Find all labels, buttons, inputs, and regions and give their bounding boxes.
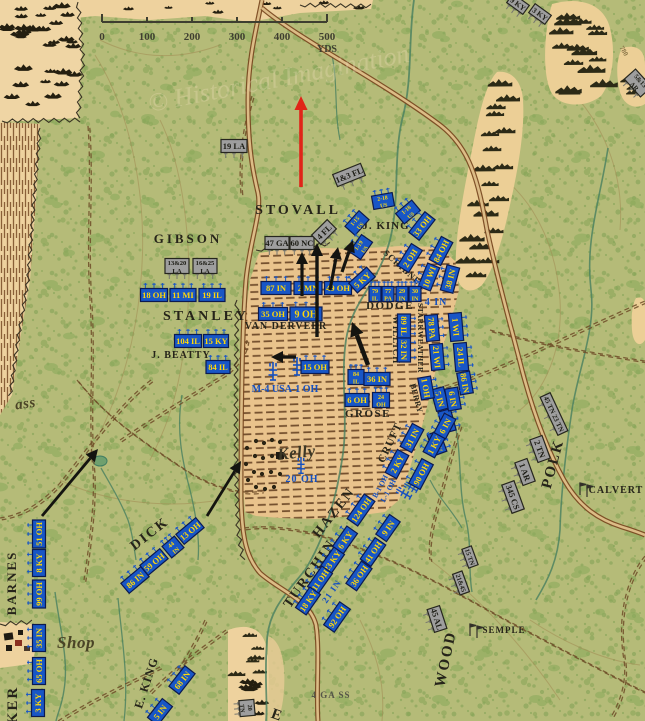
svg-text:84: 84	[353, 372, 359, 378]
svg-text:79: 79	[372, 289, 378, 295]
svg-text:IN: IN	[412, 297, 419, 303]
svg-text:PA: PA	[384, 297, 392, 303]
svg-text:15 OH: 15 OH	[303, 362, 327, 372]
svg-text:SEMPLE: SEMPLE	[482, 625, 525, 635]
svg-text:KER: KER	[5, 686, 21, 721]
svg-text:IN: IN	[399, 297, 406, 303]
svg-text:99 OH: 99 OH	[34, 582, 44, 606]
svg-text:24 IL: 24 IL	[455, 347, 467, 368]
svg-text:ass: ass	[14, 395, 37, 414]
svg-text:20: 20	[246, 705, 253, 712]
svg-text:104 IL: 104 IL	[176, 336, 200, 346]
svg-text:32 IN: 32 IN	[399, 340, 409, 361]
svg-text:100: 100	[139, 31, 156, 43]
svg-text:VAN DERVEER: VAN DERVEER	[245, 321, 327, 332]
svg-text:89 IL: 89 IL	[399, 316, 409, 336]
svg-text:65 OH: 65 OH	[34, 659, 44, 683]
svg-text:400: 400	[274, 31, 291, 43]
svg-text:STARKWEATHER: STARKWEATHER	[416, 303, 425, 373]
svg-text:77: 77	[385, 289, 391, 295]
svg-text:4 GA SS: 4 GA SS	[311, 690, 350, 700]
svg-text:OH: OH	[376, 403, 386, 409]
svg-text:Shop: Shop	[57, 633, 95, 652]
svg-text:15 KY: 15 KY	[204, 336, 227, 346]
svg-text:1 WI: 1 WI	[450, 318, 462, 338]
svg-text:GROSE: GROSE	[345, 408, 391, 420]
svg-text:BARNES: BARNES	[4, 551, 19, 616]
svg-text:21 WI: 21 WI	[431, 345, 443, 369]
svg-text:300: 300	[229, 31, 246, 43]
svg-text:J. BEATTY: J. BEATTY	[151, 350, 210, 361]
svg-text:11 MI: 11 MI	[172, 290, 194, 300]
svg-text:51 OH: 51 OH	[34, 522, 44, 546]
svg-text:35 OH: 35 OH	[261, 309, 285, 319]
svg-text:78 PA: 78 PA	[426, 317, 438, 340]
svg-text:87 IN: 87 IN	[266, 283, 287, 293]
svg-text:STOVALL: STOVALL	[255, 203, 341, 218]
svg-text:IL: IL	[372, 297, 378, 303]
svg-text:US: US	[380, 203, 388, 210]
svg-text:13&20: 13&20	[168, 260, 187, 267]
svg-text:4 IN: 4 IN	[425, 297, 448, 308]
svg-text:CALVERT: CALVERT	[589, 485, 644, 496]
svg-text:6 OH: 6 OH	[347, 395, 367, 405]
svg-text:GIBSON: GIBSON	[154, 231, 223, 246]
svg-text:47 GA: 47 GA	[265, 238, 289, 248]
svg-text:84 IL: 84 IL	[208, 362, 228, 372]
svg-text:30: 30	[412, 289, 418, 295]
svg-text:60 NC: 60 NC	[291, 238, 314, 248]
svg-text:20 OH: 20 OH	[285, 474, 318, 485]
svg-text:35 IN: 35 IN	[34, 627, 44, 648]
svg-text:9 OH: 9 OH	[294, 310, 317, 321]
svg-text:LA: LA	[200, 268, 209, 275]
svg-text:8 KY: 8 KY	[34, 553, 44, 572]
svg-text:500: 500	[319, 31, 336, 43]
svg-text:19 LA: 19 LA	[223, 141, 246, 151]
svg-text:19 IL: 19 IL	[202, 290, 222, 300]
svg-text:TN: TN	[238, 704, 245, 714]
svg-text:16&25: 16&25	[196, 260, 215, 267]
svg-text:M-4 USA-1 OH: M-4 USA-1 OH	[252, 384, 319, 395]
svg-text:IL: IL	[353, 380, 359, 386]
svg-text:200: 200	[184, 31, 201, 43]
svg-text:24: 24	[378, 395, 384, 401]
svg-text:YDS: YDS	[317, 44, 337, 55]
svg-text:LA: LA	[172, 268, 181, 275]
svg-text:3 KY: 3 KY	[33, 693, 43, 712]
svg-text:36 IN: 36 IN	[367, 374, 388, 384]
svg-text:29: 29	[399, 289, 405, 295]
svg-text:18 OH: 18 OH	[142, 290, 166, 300]
svg-text:STANLEY: STANLEY	[163, 309, 249, 324]
svg-text:0: 0	[99, 31, 105, 43]
